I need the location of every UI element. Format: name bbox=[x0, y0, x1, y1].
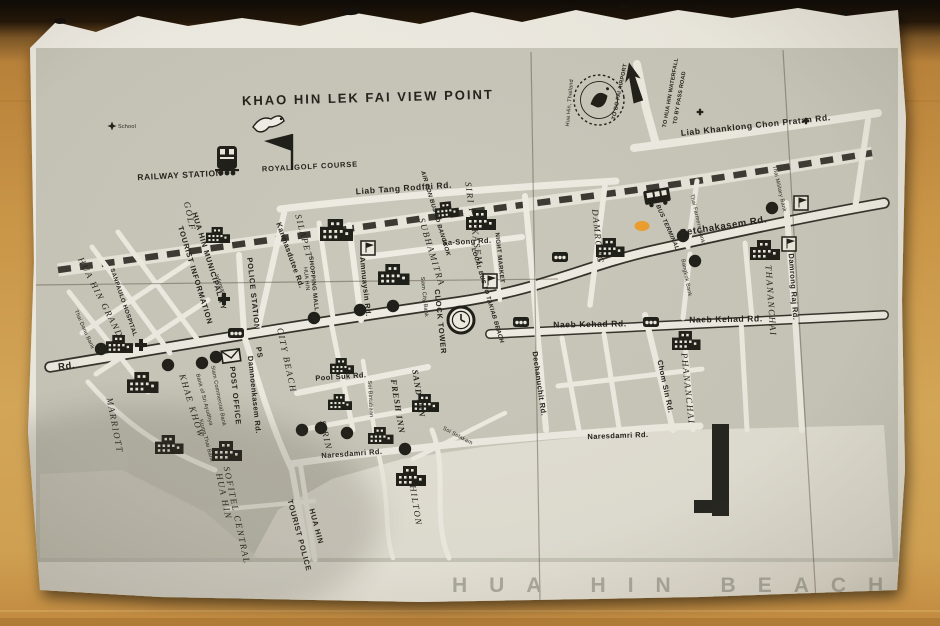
map-photo: $ bbox=[0, 0, 940, 626]
map-print: KHAO HIN LEK FAI VIEW POINT ROYAL GOLF C… bbox=[0, 0, 940, 626]
photo-vignette bbox=[0, 0, 940, 626]
photo-stage: $ bbox=[0, 0, 940, 626]
